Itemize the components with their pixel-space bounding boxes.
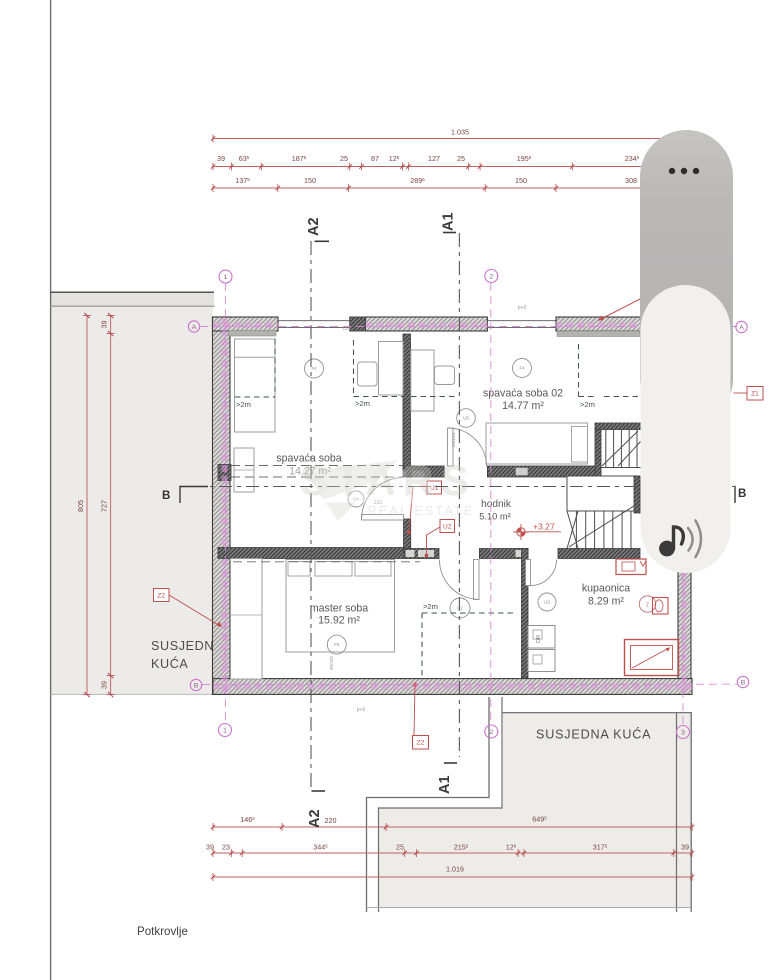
svg-text:220: 220 [325,816,337,825]
svg-text:39: 39 [100,681,109,689]
svg-text:39: 39 [681,843,689,852]
svg-text:39: 39 [206,843,214,852]
svg-text:14.77 m²: 14.77 m² [502,400,544,412]
svg-text:39: 39 [217,154,225,163]
svg-text:DR: DR [536,635,542,643]
svg-text:308: 308 [625,176,637,185]
svg-text:>2m: >2m [580,400,595,409]
svg-text:2: 2 [489,729,493,736]
svg-text:master soba: master soba [310,603,368,615]
svg-text:B: B [741,679,746,686]
svg-text:150: 150 [515,176,527,185]
svg-text:1: 1 [224,274,228,281]
svg-text:REAL ESTATE: REAL ESTATE [368,504,475,518]
svg-text:Z2: Z2 [417,740,425,747]
svg-text:>2m: >2m [355,399,370,408]
svg-text:Potkrovlje: Potkrovlje [137,925,188,938]
svg-text:U2: U2 [457,606,463,611]
svg-text:127: 127 [428,154,440,163]
svg-text:STARS: STARS [300,458,476,505]
svg-text:25: 25 [457,154,465,163]
svg-text:>2m: >2m [236,400,251,409]
svg-text:805: 805 [76,500,85,512]
svg-text:B: B [738,487,746,500]
svg-text:KUĆA: KUĆA [151,656,188,671]
svg-text:Z2: Z2 [157,592,165,599]
svg-text:1.035: 1.035 [451,128,469,137]
svg-text:39: 39 [100,321,109,329]
svg-text:hodnik: hodnik [481,499,512,510]
svg-text:25: 25 [340,154,348,163]
svg-text:p+0: p+0 [518,305,527,311]
svg-text:1: 1 [223,727,227,734]
svg-text:U3: U3 [544,600,550,605]
svg-text:87: 87 [371,154,379,163]
svg-text:p+0: p+0 [357,707,366,713]
svg-text:F4: F4 [519,366,525,371]
svg-text:25: 25 [396,843,404,852]
svg-text:A2: A2 [307,809,323,828]
svg-text:spavaća soba 02: spavaća soba 02 [483,388,563,400]
svg-text:Z1: Z1 [751,391,759,398]
svg-text:727: 727 [100,500,109,512]
svg-text:Z: Z [646,603,649,609]
svg-text:8.29 m²: 8.29 m² [588,596,624,608]
svg-text:A: A [192,324,197,331]
svg-text:150: 150 [304,176,316,185]
svg-text:F4: F4 [311,366,317,371]
svg-text:3: 3 [681,729,685,736]
svg-text:kupaonica: kupaonica [582,583,630,595]
svg-text:80/210: 80/210 [451,433,456,447]
svg-text:2: 2 [489,273,493,280]
svg-text:U2: U2 [443,523,452,530]
svg-text:A: A [739,324,744,331]
svg-text:90/200: 90/200 [329,656,334,670]
svg-text:+3.27: +3.27 [533,522,555,532]
svg-text:B: B [162,489,170,502]
svg-text:A2: A2 [306,217,322,236]
svg-text:A1: A1 [441,212,457,231]
svg-text:>2m: >2m [423,602,438,611]
svg-text:1.016: 1.016 [446,865,464,874]
svg-text:23: 23 [222,843,230,852]
svg-text:15.92 m²: 15.92 m² [318,615,360,627]
svg-text:B: B [194,682,199,689]
svg-text:U5: U5 [463,416,469,421]
svg-text:A1: A1 [437,775,453,794]
svg-text:5.10 m²: 5.10 m² [479,512,511,522]
svg-text:SUSJEDNA KUĆA: SUSJEDNA KUĆA [536,727,651,742]
svg-text:F5: F5 [334,642,340,647]
